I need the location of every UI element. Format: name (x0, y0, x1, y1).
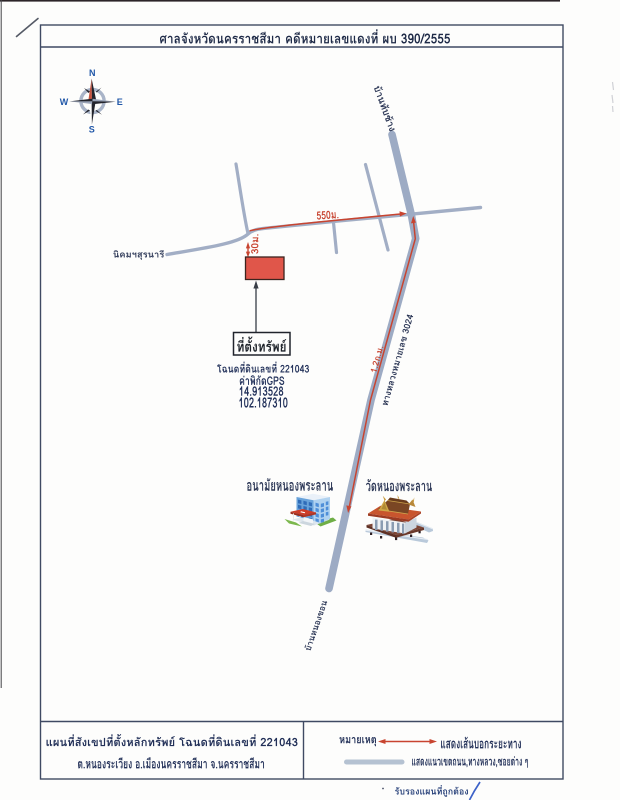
svg-text:W: W (60, 97, 69, 107)
svg-text:E: E (117, 97, 123, 107)
svg-text:N: N (89, 68, 96, 78)
svg-text:S: S (89, 125, 95, 135)
